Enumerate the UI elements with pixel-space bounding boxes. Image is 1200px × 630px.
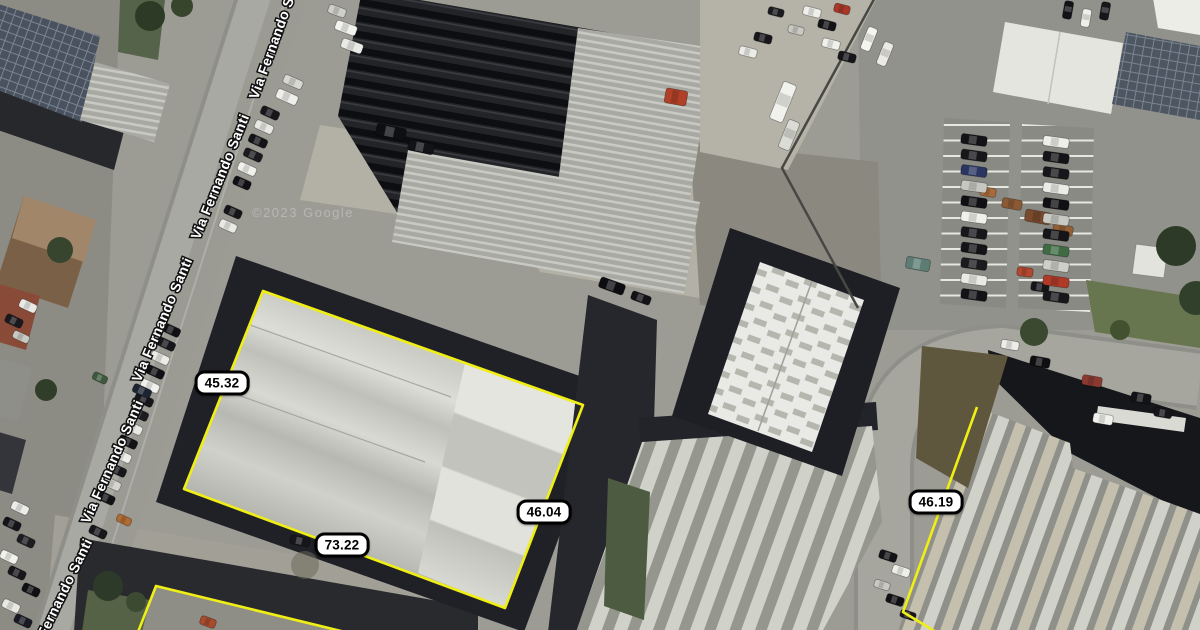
map-viewport[interactable]: Via Fernando Santi Via Fernando Santi Vi… [0,0,1200,630]
measurement-label-bottom: 73.22 [315,533,370,558]
measurement-label-neighbor: 46.19 [909,490,964,515]
satellite-imagery: Via Fernando Santi Via Fernando Santi Vi… [0,0,1200,630]
measurement-label-right: 46.04 [517,500,572,525]
google-watermark: ©2023 Google [252,205,354,220]
measurement-label-left: 45.32 [195,371,250,396]
car [1016,266,1033,277]
car [664,88,688,107]
